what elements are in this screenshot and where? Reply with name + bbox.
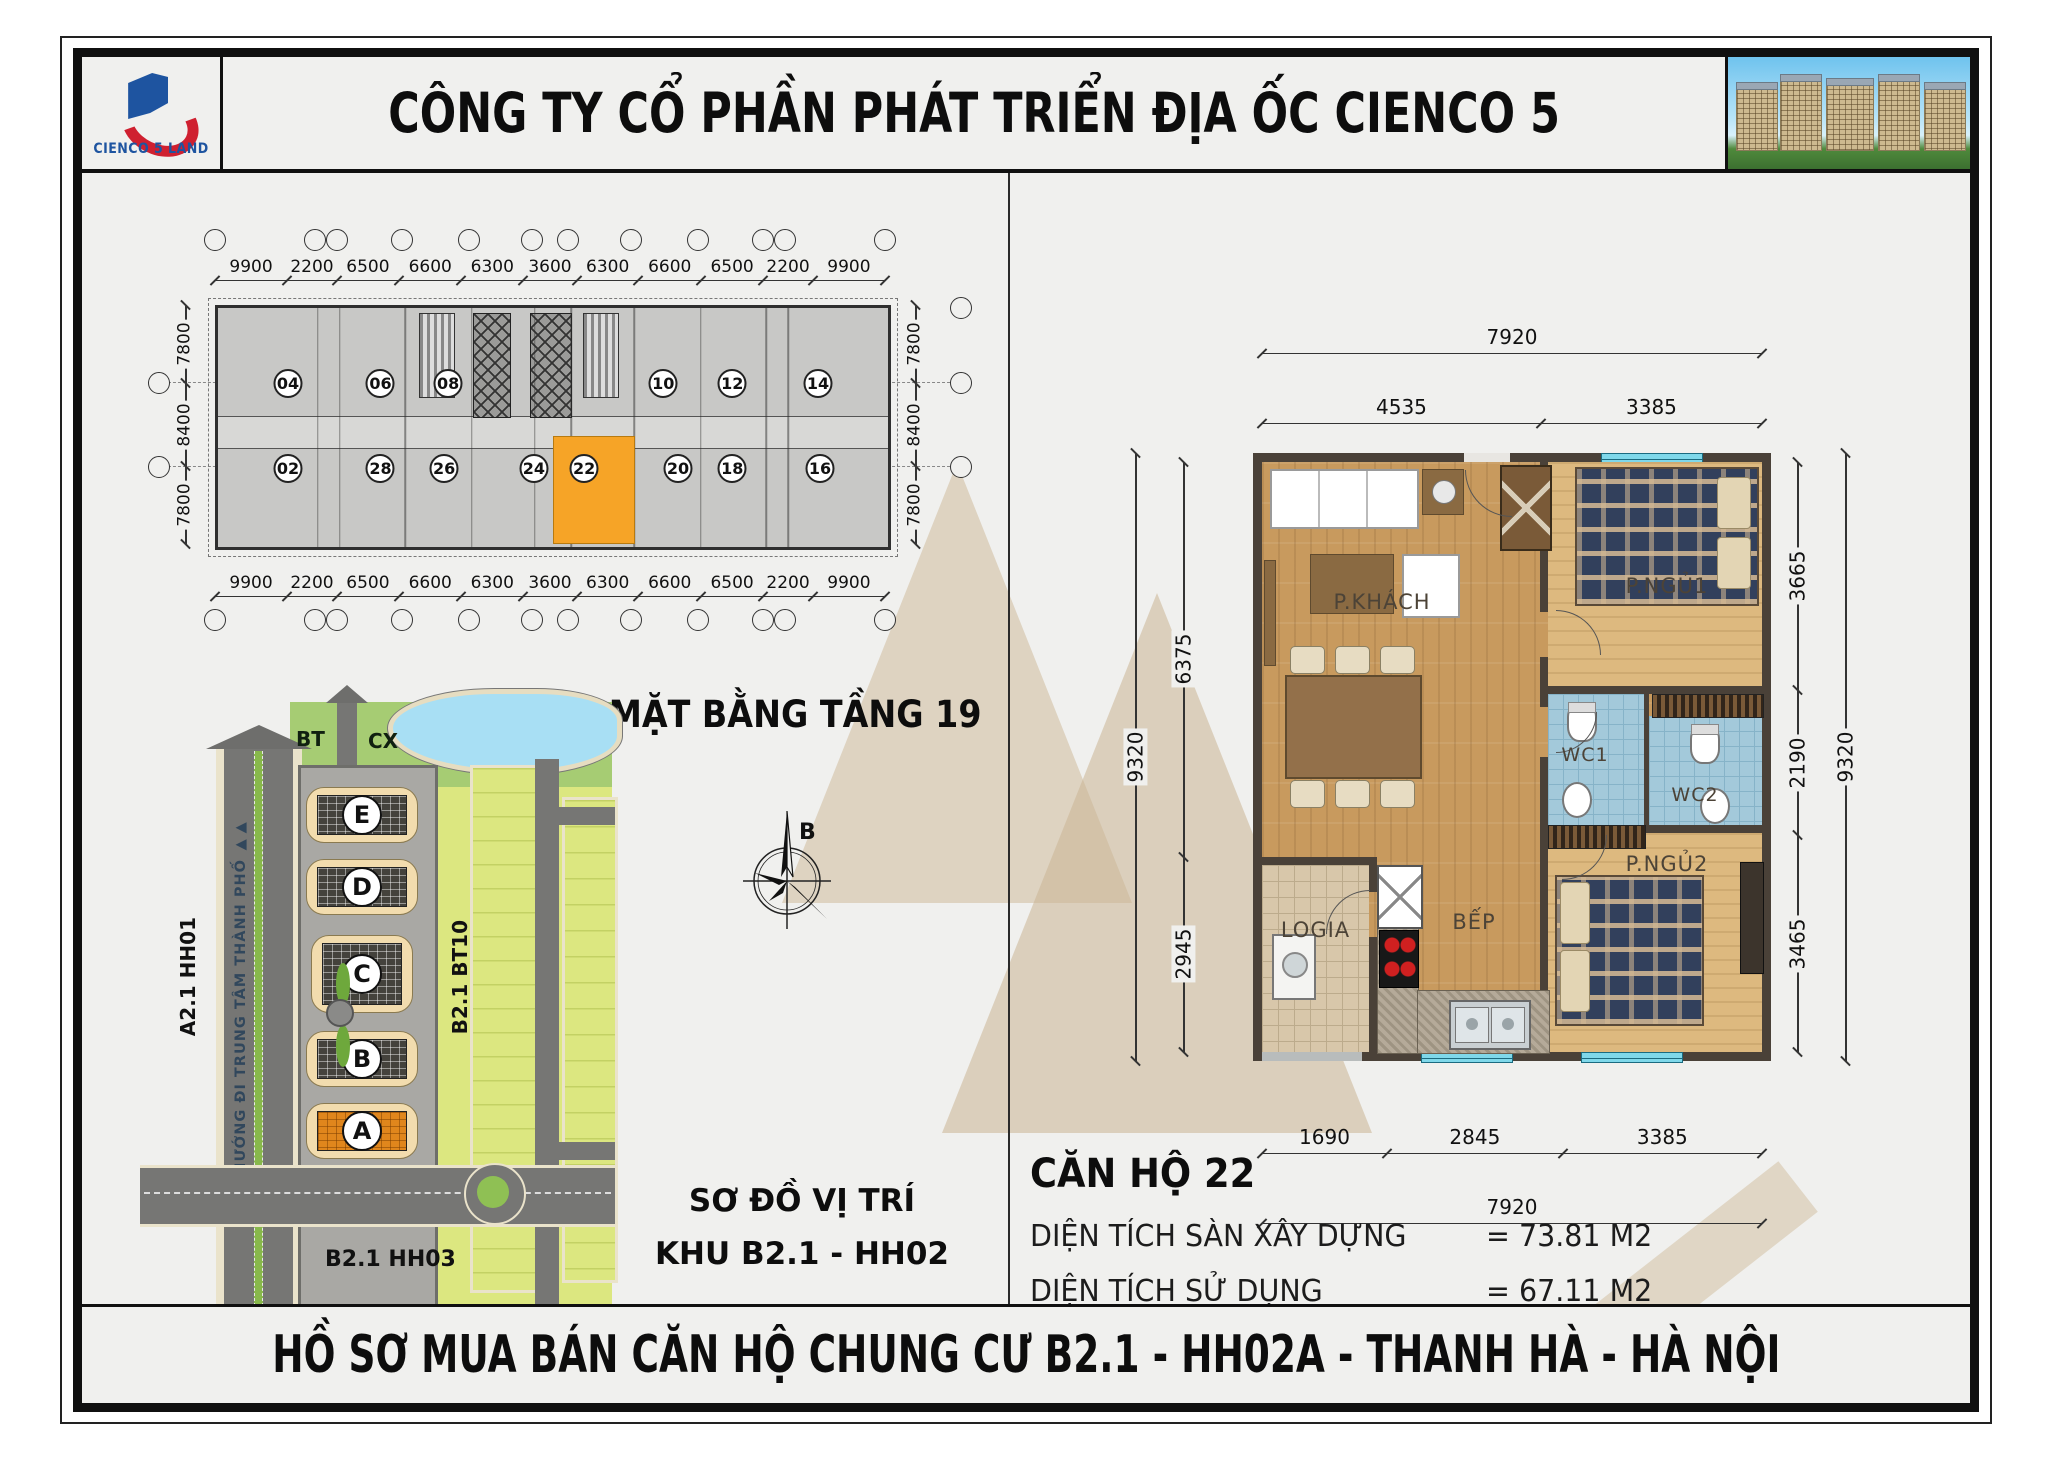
- unit-info-label: DIỆN TÍCH SỬ DỤNG: [1030, 1274, 1486, 1304]
- unit-number: 28: [366, 454, 395, 483]
- wall-bedroom1-bottom: [1548, 686, 1762, 694]
- grid-circle: [557, 229, 579, 251]
- grid-circle: [391, 609, 413, 631]
- grid-circle-left-a: [148, 372, 170, 394]
- dim-value: 6300: [577, 257, 639, 280]
- unit-number: 24: [519, 454, 548, 483]
- dim-value: 7800: [900, 466, 930, 544]
- unit-wall-line: [317, 308, 319, 547]
- dim-value: 3600: [523, 257, 577, 280]
- caption-line-2: KHU B2.1 - HH02: [642, 1228, 962, 1281]
- dim-value: 6300: [577, 573, 639, 596]
- grid-circle: [774, 229, 796, 251]
- pillow: [1560, 950, 1590, 1012]
- sofa: [1270, 469, 1419, 529]
- apt-dim-top-overall: 7920: [1262, 325, 1762, 354]
- main-area: 9900220065006600630036006300660065002200…: [82, 173, 1970, 1304]
- company-logo: CIENCO 5 LAND: [82, 57, 223, 169]
- dim-value: 9900: [215, 257, 287, 280]
- dim-value: 2200: [287, 573, 337, 596]
- overview-bottom-dims: 9900220065006600630036006300660065002200…: [215, 573, 885, 597]
- unit-info-value: = 67.11 M2: [1486, 1274, 1652, 1304]
- loggia-opening: [1262, 1052, 1362, 1061]
- washing-machine: [1272, 934, 1316, 1000]
- grid-circle: [557, 609, 579, 631]
- dim-value: 7800: [900, 305, 930, 383]
- grid-circle: [304, 609, 326, 631]
- footer: HỒ SƠ MUA BÁN CĂN HỘ CHUNG CƯ B2.1 - HH0…: [82, 1304, 1970, 1403]
- basin-wc1: [1562, 782, 1592, 818]
- unit-info-row: DIỆN TÍCH SÀN XÂY DỰNG = 73.81 M2: [1030, 1219, 1695, 1254]
- unit-number: 12: [718, 369, 747, 398]
- dining-chair: [1335, 780, 1370, 808]
- unit-number: 06: [366, 369, 395, 398]
- label-wc2: WC2: [1660, 784, 1730, 806]
- bottom-road-centerline: [144, 1192, 611, 1194]
- dim-value: 6600: [399, 257, 462, 280]
- dim-value: 3385: [1563, 1125, 1762, 1153]
- right-stub-2: [559, 1142, 615, 1160]
- grid-circle: [391, 229, 413, 251]
- unit-info: CĂN HỘ 22 DIỆN TÍCH SÀN XÂY DỰNG = 73.81…: [1030, 1151, 1730, 1304]
- unit-info-rows: DIỆN TÍCH SÀN XÂY DỰNG = 73.81 M2 DIỆN T…: [1030, 1219, 1730, 1304]
- unit-number: 10: [649, 369, 678, 398]
- apt-dim-bottom-segments: 169028453385: [1262, 1125, 1762, 1154]
- dim-value: 6500: [701, 573, 763, 596]
- wall-loggia-top: [1262, 857, 1377, 865]
- entry-door-gap: [1464, 453, 1510, 462]
- grid-circles-bottom: [215, 609, 885, 631]
- buildings-photo: [1725, 57, 1970, 169]
- wall-wc-divider: [1644, 694, 1649, 825]
- pillow: [1717, 477, 1751, 529]
- mini-roundabout: [326, 999, 354, 1027]
- dining-chair: [1290, 780, 1325, 808]
- dining-chair: [1335, 646, 1370, 674]
- unit-title: CĂN HỘ 22: [1030, 1151, 1674, 1197]
- side-table: [1422, 469, 1464, 515]
- dim-value: 3665: [1782, 462, 1812, 690]
- unit-numbers-bottom: 0228262422201816: [215, 454, 885, 481]
- grid-circle: [458, 229, 480, 251]
- grid-circle: [620, 609, 642, 631]
- apt-dim-right-segments: 366521903465: [1782, 462, 1812, 1052]
- site-plan: HƯỚNG ĐI TRUNG TÂM THÀNH PHỐ ▶▶ A2.1 HH0…: [140, 647, 615, 1304]
- sheet-frame: CIENCO 5 LAND CÔNG TY CỔ PHẦN PHÁT TRIỂN…: [73, 48, 1979, 1412]
- highlighted-unit-22-area: [553, 436, 635, 544]
- apt-dim-right-overall: 9320: [1830, 453, 1860, 1061]
- apt-dim-top-segments: 45353385: [1262, 395, 1762, 424]
- unit-wall-line: [700, 308, 702, 547]
- grid-circle: [458, 609, 480, 631]
- elevator-core-1: [473, 313, 512, 418]
- dim-value: 2200: [763, 573, 813, 596]
- unit-number: 22: [570, 454, 599, 483]
- building-letter: E: [342, 795, 382, 835]
- unit-wall-line: [788, 308, 790, 547]
- wardrobe-bedroom2-right: [1740, 862, 1764, 974]
- building-pad: C: [311, 935, 413, 1013]
- label-wc1: WC1: [1550, 744, 1620, 766]
- grid-circle: [304, 229, 326, 251]
- logo-text: CIENCO 5 LAND: [94, 141, 209, 157]
- grid-circle: [204, 229, 226, 251]
- dining-chair: [1380, 780, 1415, 808]
- dim-value: 9320: [1120, 453, 1150, 1061]
- wardrobe-above-wc2: [1652, 694, 1764, 718]
- document-sheet: CIENCO 5 LAND CÔNG TY CỔ PHẦN PHÁT TRIỂN…: [0, 0, 2048, 1459]
- dim-value: 6600: [638, 257, 701, 280]
- dim-value: 7800: [170, 305, 200, 383]
- unit-numbers-top: 040608101214: [215, 369, 885, 396]
- unit-number: 18: [718, 454, 747, 483]
- compass-north-label: B: [799, 820, 816, 845]
- dim-value: 6600: [638, 573, 701, 596]
- bottom-road: [140, 1165, 615, 1227]
- building-pad: D: [306, 859, 418, 915]
- unit-number: 14: [804, 369, 833, 398]
- unit-wall-line: [534, 308, 536, 547]
- grid-circle: [874, 229, 896, 251]
- floor-plan-title: MẶT BẰNG TẦNG 19: [575, 693, 1015, 736]
- building-pad: E: [306, 787, 418, 843]
- unit-wall-line: [339, 308, 341, 547]
- dim-value: 6300: [461, 257, 523, 280]
- site-plan-caption: SƠ ĐỒ VỊ TRÍ KHU B2.1 - HH02: [642, 1175, 962, 1280]
- unit-wall-line: [404, 308, 406, 547]
- grid-circle-right-c: [950, 456, 972, 478]
- label-bedroom1: P.NGỦ1: [1592, 574, 1742, 598]
- dim-value: 3465: [1782, 835, 1812, 1052]
- grid-circle: [620, 229, 642, 251]
- elevator-core-2: [530, 313, 572, 418]
- grid-circle: [752, 609, 774, 631]
- grid-circle: [521, 229, 543, 251]
- grid-circle: [752, 229, 774, 251]
- dim-value: 3385: [1541, 395, 1762, 423]
- grid-circles-top: [215, 229, 885, 251]
- dim-value: 6500: [337, 257, 399, 280]
- dim-value: 8400: [170, 383, 200, 466]
- apt-dim-left-overall: 9320: [1120, 453, 1150, 1061]
- dim-value: 2945: [1168, 857, 1198, 1052]
- tv-unit: [1264, 560, 1276, 666]
- stove: [1379, 930, 1419, 988]
- company-title: CÔNG TY CỔ PHẦN PHÁT TRIỂN ĐỊA ỐC CIENCO…: [223, 57, 1725, 169]
- dim-value: 1690: [1262, 1125, 1387, 1153]
- dim-value: 9900: [215, 573, 287, 596]
- pillow: [1560, 882, 1590, 944]
- wall-loggia-right-1: [1369, 865, 1377, 892]
- dim-value: 6600: [399, 573, 462, 596]
- building-pad: B: [306, 1031, 418, 1087]
- dim-value: 2190: [1782, 690, 1812, 836]
- grid-circle: [326, 229, 348, 251]
- unit-number: 04: [274, 369, 303, 398]
- compass-icon: B: [735, 807, 839, 935]
- dim-value: 6375: [1168, 462, 1198, 857]
- header: CIENCO 5 LAND CÔNG TY CỔ PHẦN PHÁT TRIỂN…: [82, 57, 1970, 173]
- label-bedroom2: P.NGỦ2: [1592, 852, 1742, 876]
- dim-value: 7800: [170, 466, 200, 544]
- unit-wall-line: [766, 308, 768, 547]
- building-letter: D: [342, 867, 382, 907]
- sheet-outer-border: CIENCO 5 LAND CÔNG TY CỔ PHẦN PHÁT TRIỂN…: [60, 36, 1992, 1424]
- unit-number: 20: [663, 454, 692, 483]
- dim-value: 2845: [1387, 1125, 1563, 1153]
- dim-value: 6300: [461, 573, 523, 596]
- unit-info-row: DIỆN TÍCH SỬ DỤNG = 67.11 M2: [1030, 1274, 1695, 1304]
- dim-value: 6500: [337, 573, 399, 596]
- unit-number: 16: [806, 454, 835, 483]
- unit-info-label: DIỆN TÍCH SÀN XÂY DỰNG: [1030, 1219, 1486, 1254]
- label-loggia: LOGIA: [1262, 918, 1369, 942]
- wall-loggia-right-2: [1369, 937, 1377, 1052]
- building-pad: A: [306, 1103, 418, 1159]
- parcel-label-hh03: B2.1 HH03: [325, 1247, 456, 1272]
- apartment-interior: P.KHÁCH P.NGỦ1 WC1 WC2 P.NGỦ2 BẾP LOGIA: [1262, 462, 1762, 1052]
- dim-value: 7920: [1262, 325, 1762, 353]
- footer-title: HỒ SƠ MUA BÁN CĂN HỘ CHUNG CƯ B2.1 - HH0…: [272, 1325, 1780, 1385]
- building-letter: A: [342, 1111, 382, 1151]
- unit-number: 02: [274, 454, 303, 483]
- dim-value: 4535: [1262, 395, 1541, 423]
- dim-value: 9900: [813, 573, 885, 596]
- grid-circle: [687, 609, 709, 631]
- unit-number: 08: [434, 369, 463, 398]
- panel-divider: [1008, 173, 1010, 1304]
- grid-circle-left-b: [148, 456, 170, 478]
- dining-chair: [1380, 646, 1415, 674]
- wall-hall-vertical-2: [1540, 657, 1548, 707]
- door-arc-entry: [1465, 470, 1512, 517]
- grid-circle-right-b: [950, 372, 972, 394]
- dim-value: 3600: [523, 573, 577, 596]
- dining-chair: [1290, 646, 1325, 674]
- grid-circle: [521, 609, 543, 631]
- window-bedroom2-bottom: [1581, 1052, 1683, 1063]
- dim-value: 9320: [1830, 453, 1860, 1061]
- dim-value: 8400: [900, 383, 930, 466]
- overview-left-dims: 780084007800: [170, 305, 200, 544]
- kitchen-cabinet: [1377, 865, 1423, 929]
- apt-dim-left-segments: 63752945: [1168, 462, 1198, 1052]
- label-living: P.KHÁCH: [1302, 590, 1462, 614]
- dim-value: 9900: [813, 257, 885, 280]
- grid-circle: [687, 229, 709, 251]
- grid-circle: [326, 609, 348, 631]
- grid-circle: [874, 609, 896, 631]
- cienco5-logo-icon: [114, 73, 188, 139]
- grid-circle: [204, 609, 226, 631]
- dim-value: 2200: [763, 257, 813, 280]
- grid-circle: [774, 609, 796, 631]
- green-island-2: [336, 1025, 350, 1067]
- dim-value: 6500: [701, 257, 763, 280]
- overview-right-dims: 780084007800: [900, 305, 930, 544]
- dim-value: 2200: [287, 257, 337, 280]
- roundabout: [464, 1163, 526, 1225]
- unit-info-value: = 73.81 M2: [1486, 1219, 1652, 1254]
- caption-line-1: SƠ ĐỒ VỊ TRÍ: [642, 1175, 962, 1228]
- unit-wall-line: [471, 308, 473, 547]
- toilet-wc2: [1690, 724, 1720, 764]
- dining-table: [1285, 675, 1422, 779]
- company-title-text: CÔNG TY CỔ PHẦN PHÁT TRIỂN ĐỊA ỐC CIENCO…: [389, 81, 1561, 145]
- unit-number: 26: [430, 454, 459, 483]
- kitchen-sink: [1449, 1000, 1531, 1050]
- grid-circle-right-a: [950, 297, 972, 319]
- label-kitchen: BẾP: [1424, 910, 1524, 934]
- apartment-plan: P.KHÁCH P.NGỦ1 WC1 WC2 P.NGỦ2 BẾP LOGIA: [1253, 453, 1771, 1061]
- overview-top-dims: 9900220065006600630036006300660065002200…: [215, 257, 885, 281]
- right-stub-1: [559, 807, 615, 825]
